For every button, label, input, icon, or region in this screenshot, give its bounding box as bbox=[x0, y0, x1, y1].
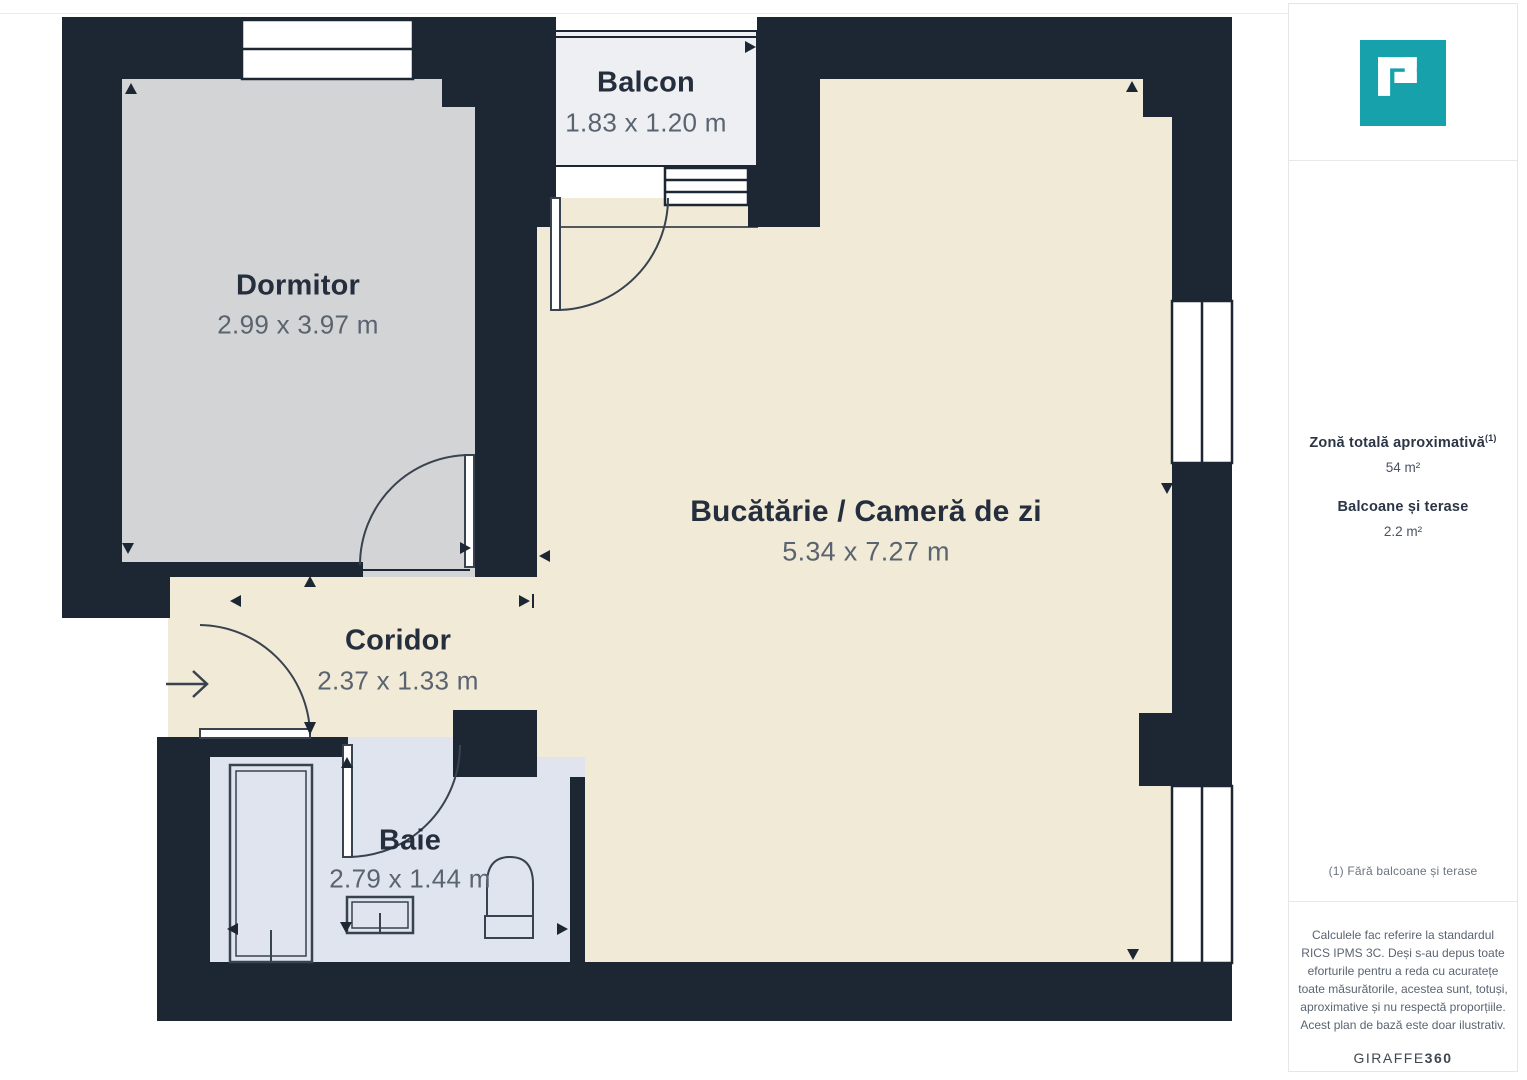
room-dims-dormitor: 2.99 x 3.97 m bbox=[217, 310, 378, 341]
total-area-label: Zonă totală aproximativă(1) bbox=[1289, 433, 1517, 451]
room-name-baie: Baie bbox=[379, 825, 441, 858]
window-bucatarie-left bbox=[665, 168, 748, 205]
room-dims-bucatarie: 5.34 x 7.27 m bbox=[782, 537, 950, 568]
giraffe360-logo-icon bbox=[1360, 40, 1446, 126]
disclaimer-section: Calculele fac referire la standardul RIC… bbox=[1289, 902, 1517, 1071]
room-name-balcon: Balcon bbox=[597, 67, 695, 100]
floorplan-drawing bbox=[0, 0, 1288, 1080]
window-right-upper bbox=[1172, 301, 1232, 463]
floor-baie-door-patch bbox=[348, 737, 453, 757]
floor-patch-under-window bbox=[665, 205, 748, 227]
brand-wordmark: GIRAFFE360 bbox=[1295, 1050, 1511, 1066]
room-name-coridor: Coridor bbox=[345, 625, 451, 658]
window-right-lower bbox=[1172, 786, 1232, 963]
room-name-bucatarie: Bucătărie / Cameră de zi bbox=[690, 495, 1042, 529]
floor-patch-balcony-door bbox=[556, 198, 668, 227]
room-dims-baie: 2.79 x 1.44 m bbox=[329, 864, 490, 895]
footnote-section: (1) Fără balcoane și terase bbox=[1289, 841, 1517, 902]
room-dims-coridor: 2.37 x 1.33 m bbox=[317, 666, 478, 697]
balconies-value: 2.2 m² bbox=[1289, 524, 1517, 539]
window-dormitor bbox=[242, 20, 413, 79]
footnote-text: (1) Fără balcoane și terase bbox=[1329, 864, 1478, 878]
balconies-label: Balcoane și terase bbox=[1289, 499, 1517, 515]
disclaimer-text: Calculele fac referire la standardul RIC… bbox=[1296, 926, 1510, 1034]
room-name-dormitor: Dormitor bbox=[236, 270, 360, 303]
area-summary: Zonă totală aproximativă(1) 54 m² Balcoa… bbox=[1289, 161, 1517, 841]
floor-baie bbox=[210, 757, 585, 962]
room-dims-balcon: 1.83 x 1.20 m bbox=[565, 108, 726, 139]
total-area-value: 54 m² bbox=[1289, 460, 1517, 475]
logo-section bbox=[1289, 4, 1517, 161]
floorplan-page: Dormitor 2.99 x 3.97 m Balcon 1.83 x 1.2… bbox=[0, 0, 1527, 1080]
info-sidebar: Zonă totală aproximativă(1) 54 m² Balcoa… bbox=[1288, 3, 1518, 1072]
